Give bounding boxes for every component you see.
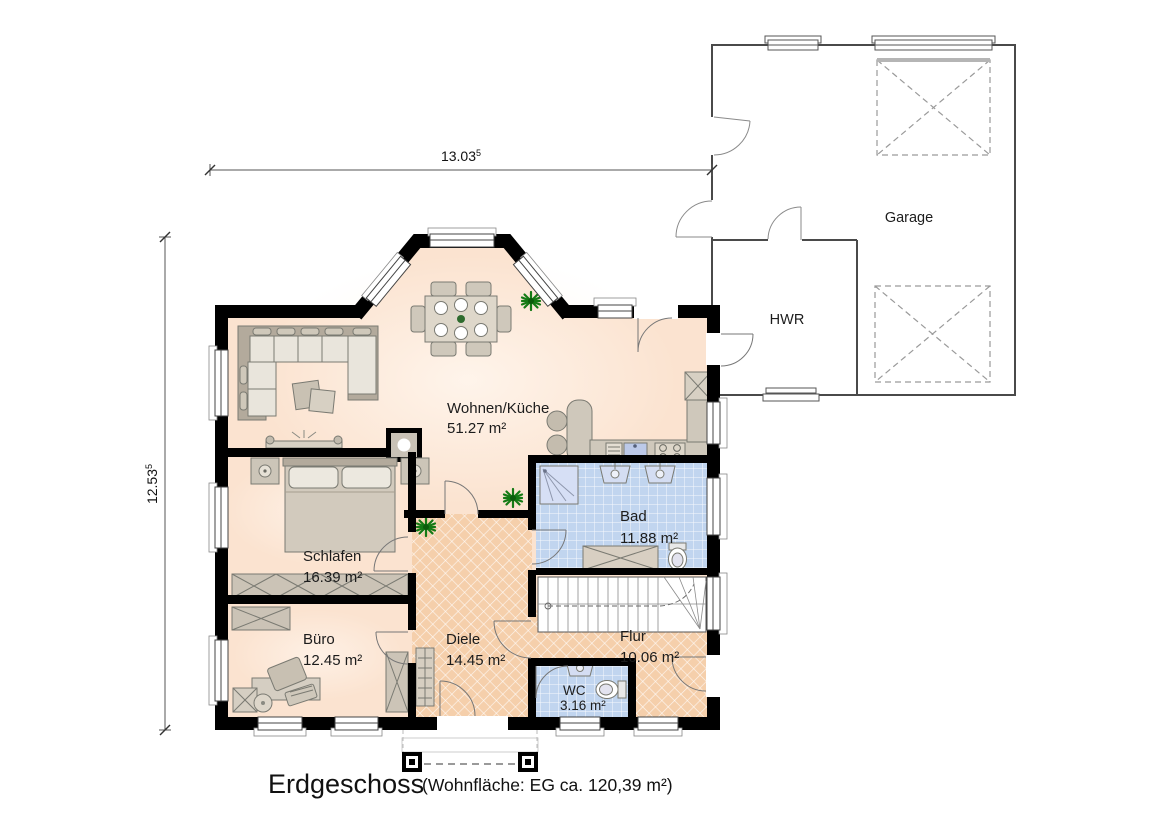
garage-label: Garage: [885, 210, 933, 226]
floor-plan-page: Garage HWR: [0, 0, 1160, 820]
room-label-wc: WC: [563, 683, 586, 698]
room-area-flur: 10.06 m²: [620, 649, 679, 666]
porch: [402, 730, 538, 772]
plan-area-note: (Wohnfläche: EG ca. 120,39 m²): [422, 775, 673, 795]
room-label-diele: Diele: [446, 631, 480, 648]
shower: [540, 466, 578, 504]
plant-icon: [504, 489, 522, 507]
room-label-wohnen: Wohnen/Küche: [447, 400, 549, 417]
toilet-wc: [596, 681, 626, 699]
stairs: [538, 577, 706, 632]
room-area-buero: 12.45 m²: [303, 652, 362, 669]
room-area-diele: 14.45 m²: [446, 652, 505, 669]
plant-icon: [522, 292, 540, 310]
dimension-top: 13.035: [205, 148, 717, 176]
room-label-schlafen: Schlafen: [303, 548, 361, 565]
plant-icon: [417, 518, 435, 536]
dimension-height: 12.535: [144, 464, 160, 504]
room-label-buero: Büro: [303, 631, 335, 648]
room-area-bad: 11.88 m²: [620, 530, 678, 547]
plan-title: Erdgeschoss: [268, 769, 424, 799]
dimension-left: 12.535: [144, 232, 171, 735]
post: [518, 752, 538, 772]
bathtub: [583, 546, 658, 570]
hwr-label: HWR: [770, 312, 805, 328]
room-area-schlafen: 16.39 m²: [303, 569, 362, 586]
bed: [283, 458, 397, 552]
room-label-flur: Flur: [620, 628, 646, 645]
garage-block: [676, 36, 1015, 401]
floor-plan: Garage HWR: [0, 0, 1160, 820]
room-label-bad: Bad: [620, 508, 647, 525]
dimension-width: 13.035: [441, 148, 481, 164]
toilet-bad: [669, 543, 687, 570]
room-area-wohnen: 51.27 m²: [447, 420, 506, 437]
room-area-wc: 3.16 m²: [560, 698, 606, 713]
fireplace: [386, 428, 422, 462]
